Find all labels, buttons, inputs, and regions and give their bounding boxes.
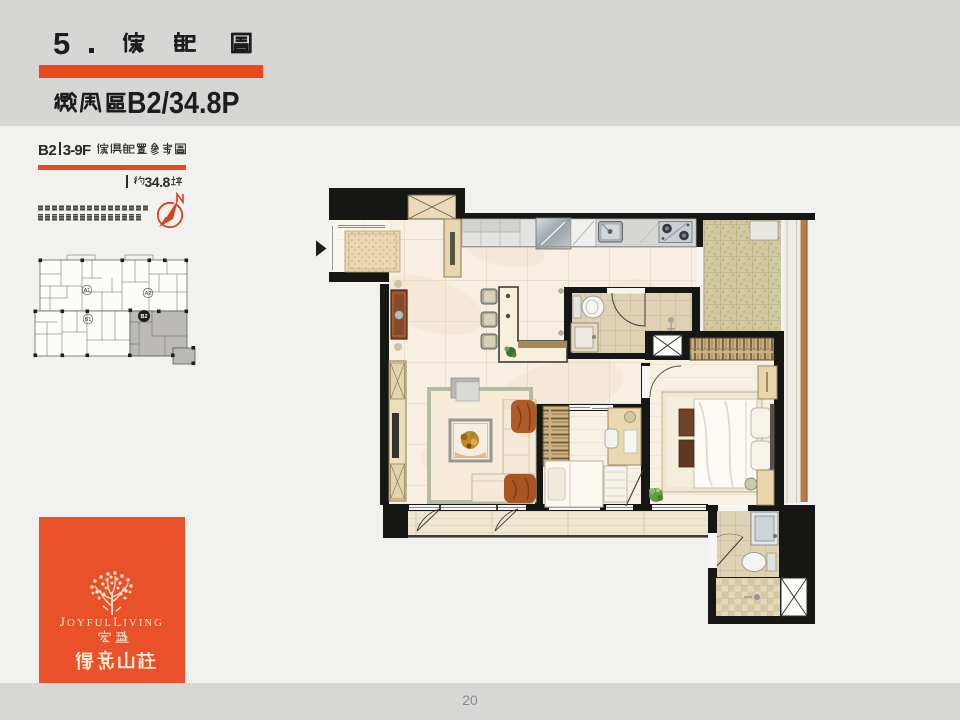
svg-text:A1: A1 xyxy=(84,288,91,294)
svg-text:B2: B2 xyxy=(140,314,147,320)
svg-text:A2: A2 xyxy=(145,291,152,297)
svg-text:B1: B1 xyxy=(85,317,92,323)
